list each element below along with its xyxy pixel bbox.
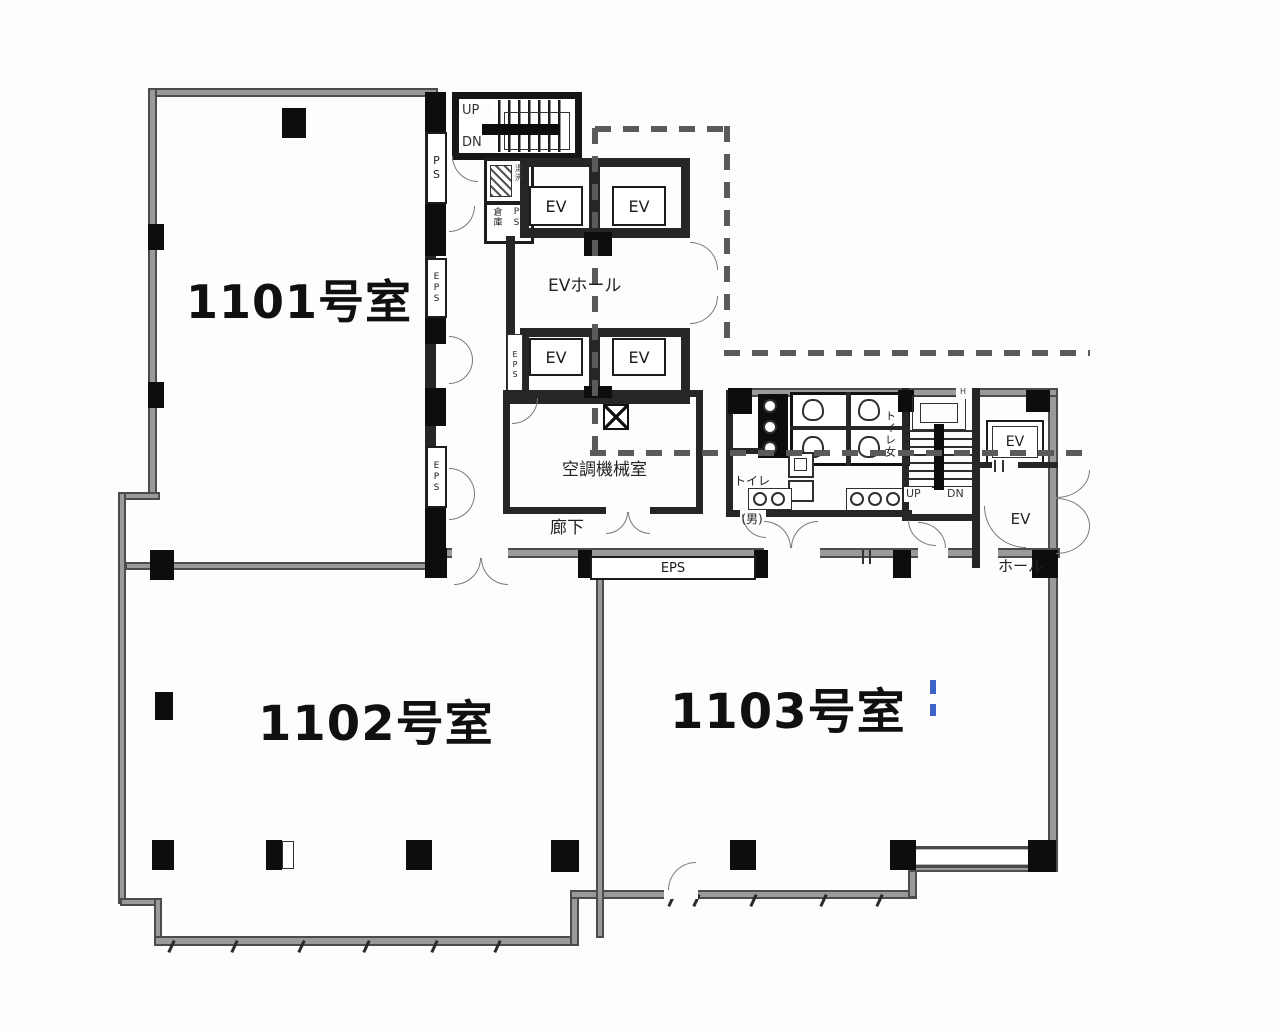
wall-evbank-top: [520, 158, 690, 167]
door-arc: [1056, 470, 1090, 498]
elevator-1: EV: [529, 186, 583, 226]
stair-rail-bar: [482, 124, 560, 135]
wall-right: [1048, 388, 1058, 872]
wall-stub: [584, 232, 612, 256]
sink: [886, 492, 900, 506]
room-label-1101: 1101号室: [186, 266, 412, 332]
eps-bottom-label: EPS: [661, 561, 685, 576]
toilet: [858, 399, 880, 421]
column-half: [282, 841, 294, 869]
toilet: [802, 399, 824, 421]
eps-bottom-box: EPS: [590, 556, 756, 580]
stairs-right-h-label: H: [960, 388, 966, 396]
wall-hvac-bottom: [503, 507, 703, 514]
door-arc: [628, 512, 650, 534]
toilet-men-line2: (男): [734, 513, 770, 526]
hvac-room-label: 空調機械室: [562, 462, 647, 480]
ev-label: EV: [628, 197, 649, 216]
balcony-strip: [912, 846, 1034, 868]
column: [425, 204, 446, 256]
pantry-label: 湯沸: [514, 164, 522, 182]
column: [148, 224, 164, 250]
ev-label: EV: [545, 197, 566, 216]
ev-hall-right-line1: EV: [998, 512, 1043, 528]
dashed-line: [724, 350, 1090, 356]
column: [155, 692, 173, 720]
room-label-1102: 1102号室: [258, 684, 494, 754]
door-gap: [664, 890, 698, 899]
column: [425, 92, 446, 132]
corridor-label: 廊下: [550, 520, 584, 538]
column: [152, 840, 174, 870]
wall-left-1101: [148, 88, 157, 498]
elevator-3: EV: [529, 338, 583, 376]
shaft-ps-top: PS: [426, 132, 447, 204]
sink: [868, 492, 882, 506]
sink: [850, 492, 864, 506]
toilet-women-label: トイレ女: [884, 410, 896, 458]
door-tick: [869, 550, 871, 564]
door-arc: [791, 521, 818, 548]
door-arc: [1056, 526, 1090, 554]
door-arc: [454, 558, 481, 585]
elevator-2: EV: [612, 186, 666, 226]
door-arc: [690, 296, 718, 324]
wall-evbank2-right: [681, 328, 690, 398]
column: [282, 108, 306, 138]
blue-dash-mark: [930, 680, 936, 694]
column: [754, 550, 768, 578]
door-gap: [918, 548, 948, 558]
ev-label: EV: [545, 348, 566, 367]
door-arc: [452, 156, 478, 182]
door-arc: [449, 206, 475, 232]
pantry-hatch: [490, 165, 512, 197]
sink: [771, 492, 785, 506]
stairs-top-dn-label: DN: [462, 136, 482, 150]
door-tick: [862, 550, 864, 564]
door-arc: [449, 494, 475, 520]
shaft-eps-ev: EPS: [507, 334, 523, 396]
stairs-top-up-label: UP: [462, 104, 479, 118]
door-arc: [690, 242, 718, 270]
ev-hall-right-line2: ホール: [998, 559, 1043, 575]
shaft-eps-upper: EPS: [426, 258, 447, 318]
hvac-shaft-symbol: [603, 404, 629, 430]
urinal: [763, 420, 777, 434]
ev-label: EV: [628, 348, 649, 367]
door-arc: [449, 360, 473, 384]
floor-plan: PS EPS EPS UP DN 湯沸 倉庫 PS EV EV EVホール: [0, 0, 1280, 1030]
room-label-1103: 1103号室: [670, 672, 906, 742]
wall-evbank-right: [681, 158, 690, 238]
column: [406, 840, 432, 870]
ev-hall-right-label: EV ホール: [998, 480, 1043, 606]
eps-lower-label: EPS: [432, 461, 442, 494]
column: [425, 318, 446, 344]
column: [148, 382, 164, 408]
wall-hvac-left: [503, 390, 510, 514]
ev-hall-label: EVホール: [548, 278, 621, 296]
wall-top-1101: [148, 88, 438, 97]
shaft-eps-lower: EPS: [426, 446, 447, 508]
column: [425, 548, 447, 578]
urinal: [763, 399, 777, 413]
wall-evbank2-top: [520, 328, 690, 337]
door-arc: [449, 468, 475, 494]
stairs-right-dn-label: DN: [947, 488, 964, 500]
toilet-men-label: トイレ (男): [734, 450, 770, 551]
storage-label: 倉庫: [491, 207, 500, 227]
column: [425, 388, 446, 426]
eps-ev-label: EPS: [511, 350, 520, 380]
column: [1026, 390, 1050, 412]
wall-bottom-1103: [570, 890, 917, 899]
column: [150, 550, 174, 580]
column: [266, 840, 282, 870]
column: [730, 840, 756, 870]
door-arc: [908, 520, 936, 546]
column: [551, 840, 579, 872]
toilet-men-line1: トイレ: [734, 475, 770, 488]
eps-upper-label: EPS: [432, 272, 442, 305]
stair-rail-bar: [934, 424, 944, 490]
door-arc: [481, 558, 508, 585]
wall-stairsR-right: [972, 388, 980, 568]
door-arc: [1056, 498, 1090, 526]
door-arc: [449, 336, 473, 360]
slop-sink-inner: [794, 458, 807, 471]
column: [893, 550, 911, 578]
door-arc: [606, 512, 628, 534]
dashed-line: [590, 450, 1090, 456]
door-arc: [512, 398, 538, 424]
storage-ps-label: PS: [511, 207, 520, 229]
stair-landing-inner: [920, 403, 958, 423]
blue-dash-mark: [930, 704, 936, 716]
wall-1102-1103: [596, 558, 604, 938]
column: [1028, 840, 1056, 872]
ps-top-label: PS: [430, 154, 443, 182]
door-arc: [668, 862, 696, 890]
door-tick: [994, 460, 996, 472]
door-gap: [452, 548, 508, 558]
door-gap: [764, 548, 820, 558]
dashed-line: [595, 126, 730, 132]
column: [890, 840, 916, 870]
door-tick: [1002, 460, 1004, 472]
wall-left-lower: [118, 492, 126, 904]
elevator-4: EV: [612, 338, 666, 376]
dashed-line: [724, 126, 730, 356]
column: [728, 388, 752, 414]
wall-stub: [584, 386, 612, 398]
stairs-right-up-label: UP: [906, 488, 921, 500]
